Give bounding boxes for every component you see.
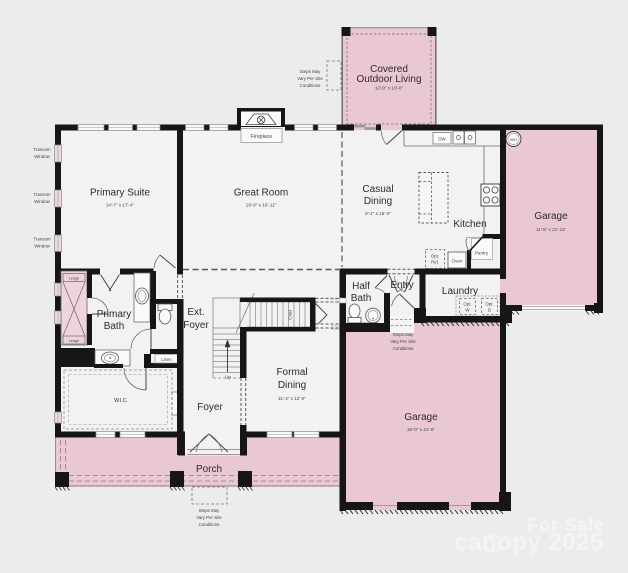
svg-text:Opt.: Opt. [463, 302, 471, 307]
svg-text:Pantry: Pantry [475, 251, 489, 256]
svg-text:11'-5" x 21'-11": 11'-5" x 21'-11" [536, 227, 566, 232]
svg-text:Ext.: Ext. [187, 307, 204, 318]
svg-text:Foyer: Foyer [197, 402, 223, 413]
svg-text:Steps May: Steps May [300, 69, 322, 74]
svg-text:Opt.: Opt. [485, 302, 493, 307]
svg-text:DW: DW [438, 137, 446, 142]
svg-text:Opt.: Opt. [431, 254, 439, 259]
svg-text:Ledge: Ledge [69, 339, 80, 343]
svg-text:Transom: Transom [33, 192, 51, 197]
svg-text:Up: Up [225, 375, 231, 380]
svg-text:11'-4" x 12'-0": 11'-4" x 12'-0" [278, 396, 306, 401]
svg-text:Ref.: Ref. [431, 260, 439, 265]
svg-text:Foyer: Foyer [183, 320, 209, 331]
svg-text:Porch: Porch [196, 464, 222, 475]
svg-text:Linen: Linen [161, 357, 172, 362]
svg-text:Bath: Bath [104, 321, 125, 332]
svg-text:Conditions: Conditions [300, 83, 322, 88]
svg-text:Vary Per Site: Vary Per Site [297, 76, 323, 81]
svg-text:Vary Per Site: Vary Per Site [196, 515, 222, 520]
svg-text:Window: Window [34, 154, 50, 159]
svg-text:Window: Window [34, 244, 50, 249]
svg-text:Transom: Transom [33, 147, 51, 152]
svg-text:9'-1" x 15'-3": 9'-1" x 15'-3" [365, 211, 391, 216]
svg-text:WH: WH [510, 137, 517, 142]
svg-text:W.I.C.: W.I.C. [114, 398, 128, 404]
svg-text:Dining: Dining [364, 196, 392, 207]
svg-text:Formal: Formal [276, 367, 307, 378]
svg-text:12'-0" x 10'-0": 12'-0" x 10'-0" [375, 86, 404, 91]
svg-text:Garage: Garage [534, 211, 568, 222]
svg-text:Ledge: Ledge [69, 277, 80, 281]
svg-text:19'-0" x 21'-6": 19'-0" x 21'-6" [407, 427, 436, 432]
svg-text:Window: Window [34, 199, 50, 204]
svg-text:Primary Suite: Primary Suite [90, 188, 150, 199]
svg-text:Fireplace: Fireplace [251, 134, 272, 140]
svg-text:Kitchen: Kitchen [453, 219, 486, 230]
svg-text:Primary: Primary [97, 309, 131, 320]
svg-text:Conditions: Conditions [393, 346, 415, 351]
svg-text:Half: Half [352, 281, 370, 292]
svg-text:Vary Per Site: Vary Per Site [390, 339, 416, 344]
svg-text:Coat: Coat [288, 309, 293, 319]
svg-text:D: D [488, 308, 491, 313]
svg-text:canopy 2025: canopy 2025 [454, 529, 604, 556]
svg-text:Garage: Garage [404, 412, 438, 423]
svg-text:Casual: Casual [362, 184, 393, 195]
svg-text:Conditions: Conditions [199, 522, 221, 527]
svg-text:Laundry: Laundry [442, 286, 478, 297]
svg-text:Outdoor Living: Outdoor Living [356, 74, 421, 85]
svg-text:Great Room: Great Room [234, 188, 288, 199]
svg-text:19'-8" x 16'-11": 19'-8" x 16'-11" [246, 203, 277, 208]
svg-text:14'-7" x 17'-4": 14'-7" x 17'-4" [106, 203, 135, 208]
svg-text:Steps May: Steps May [199, 508, 221, 513]
svg-text:Transom: Transom [33, 237, 51, 242]
svg-text:Bath: Bath [351, 293, 372, 304]
svg-text:Dining: Dining [278, 380, 306, 391]
svg-text:Oven: Oven [452, 259, 463, 264]
